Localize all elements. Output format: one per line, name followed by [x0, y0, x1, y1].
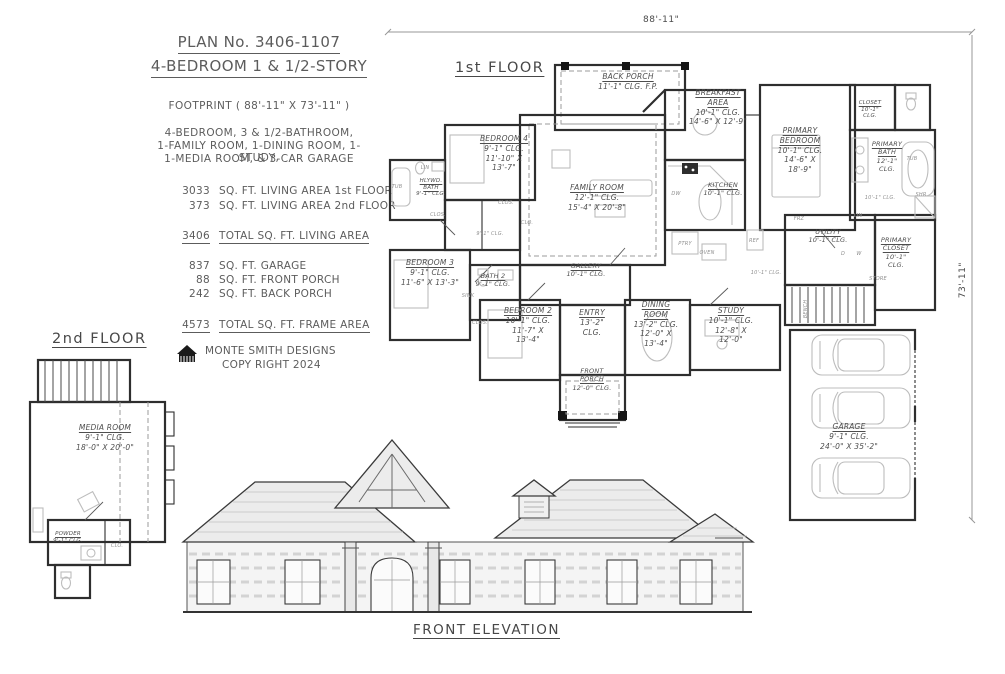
fixture-label-oven: OVEN — [699, 250, 714, 256]
room-details: 9'-1" CLG. 18'-0" X 20'-0" — [76, 433, 134, 453]
area-row-total-frame: 4573 TOTAL SQ. FT. FRAME AREA — [152, 319, 370, 333]
room-closet-upper: CLOSET 10'-1" CLG. — [859, 100, 882, 120]
room-name: PRIMARY CLOSET — [881, 236, 911, 253]
powder-fixtures — [61, 546, 101, 589]
fixture-label-shower: SHR — [915, 192, 926, 198]
room-back-porch: BACK PORCH 11'-1" CLG. F.P. — [598, 72, 658, 92]
plan-type-title: 4-BEDROOM 1 & 1/2-STORY — [140, 57, 378, 75]
room-name: DINING ROOM — [634, 300, 679, 320]
room-details: 9'-1" CLG. 24'-0" X 35'-2" — [820, 432, 878, 452]
fixture-label-closet: CLOS. — [498, 200, 514, 206]
room-details: 10'-1" CLG. 14'-6" X 12'-9" — [689, 108, 747, 128]
room-details: 10'-1" CLG. 14'-6" X 18'-9" — [778, 146, 823, 175]
plan-type-text: 4-BEDROOM 1 & 1/2-STORY — [151, 57, 367, 78]
area-value: 242 — [152, 288, 219, 300]
entry-door — [371, 558, 413, 612]
area-label: SQ. FT. LIVING AREA 2nd FLOOR — [219, 200, 396, 212]
room-details: 9'-1" CLG. 11'-6" X 13'-3" — [401, 268, 459, 288]
ceiling-note-10-1: 10'-1" CLG. — [751, 270, 782, 276]
garage-cars — [812, 335, 910, 498]
bathroom-fixtures — [392, 93, 935, 286]
total-frame-value: 4573 — [182, 319, 210, 333]
area-row-back-porch: 242 SQ. FT. BACK PORCH — [152, 288, 332, 300]
room-name: HLYWD. BATH — [416, 178, 446, 191]
area-label: SQ. FT. FRONT PORCH — [219, 274, 340, 286]
room-entry: ENTRY 13'-2" CLG. — [579, 308, 605, 337]
area-row-garage: 837 SQ. FT. GARAGE — [152, 260, 306, 272]
fixture-label-closet: CLOS. — [430, 212, 446, 218]
fixture-label-freezer: FRZ — [794, 216, 804, 222]
area-row-living-2nd: 373 SQ. FT. LIVING AREA 2nd FLOOR — [152, 200, 396, 212]
room-primary-bath: PRIMARY BATH 12'-1" CLG. — [872, 140, 902, 174]
car-icon — [812, 335, 910, 375]
room-name: FRONT PORCH — [572, 367, 611, 384]
room-details: 13'-2" CLG. 12'-0" X 13'-4" — [634, 320, 679, 349]
kitchen-range-icon — [682, 163, 698, 174]
room-details: 9'-1" CLG. — [416, 191, 446, 198]
floor-plan-sheet: PLAN No. 3406-1107 4-BEDROOM 1 & 1/2-STO… — [0, 0, 1005, 674]
room-name: PRIMARY BATH — [872, 140, 902, 157]
room-name: UTILITY — [808, 228, 847, 236]
fixture-label-sink: SINK — [462, 293, 474, 299]
media-room-furniture — [33, 492, 99, 532]
total-living-value: 3406 — [182, 230, 210, 244]
room-name: BREAKFAST AREA — [689, 88, 747, 108]
ceiling-note-9-1: 9'-1" CLG. — [476, 231, 503, 237]
room-media-room: MEDIA ROOM 9'-1" CLG. 18'-0" X 20'-0" — [76, 423, 134, 452]
room-name: MEDIA ROOM — [76, 423, 134, 433]
room-name: FAMILY ROOM — [568, 183, 626, 193]
room-details: 12'-0" CLG. — [572, 384, 611, 392]
room-name: BACK PORCH — [598, 72, 658, 82]
total-living-label: TOTAL SQ. FT. LIVING AREA — [219, 230, 369, 244]
room-details: 10'-1" CLG. — [808, 236, 847, 244]
room-details: 12'-1" CLG. 15'-4" X 20'-8" — [568, 193, 626, 213]
fixture-label-refrigerator: REF — [749, 238, 759, 244]
area-label: SQ. FT. GARAGE — [219, 260, 306, 272]
area-label: SQ. FT. BACK PORCH — [219, 288, 332, 300]
room-powder: POWDER 9'-1" CLG. — [53, 531, 83, 544]
plan-number-title: PLAN No. 3406-1107 — [150, 33, 368, 51]
room-name: BEDROOM 2 — [504, 306, 552, 316]
fixture-label-dryer: D — [841, 251, 845, 257]
room-details: 10'-1" CLG. 11'-7" X 13'-4" — [504, 316, 552, 345]
fixture-label-closet: CLOS. — [472, 320, 488, 326]
dormer — [513, 480, 555, 518]
room-kitchen: KITCHEN 10'-1" CLG. — [703, 181, 742, 198]
room-name: GARAGE — [820, 422, 878, 432]
room-name: KITCHEN — [703, 181, 742, 189]
room-hollywood-bath: HLYWD. BATH 9'-1" CLG. — [416, 178, 446, 198]
room-study: STUDY 10'-1" CLG. 12'-8" X 12'-0" — [709, 306, 754, 345]
area-value: 3033 — [152, 185, 219, 197]
fixture-label-tub: TUB — [907, 156, 918, 162]
description-line-1: 4-BEDROOM, 3 & 1/2-BATHROOM, — [140, 127, 378, 139]
room-name: POWDER — [53, 531, 83, 538]
area-row-front-porch: 88 SQ. FT. FRONT PORCH — [152, 274, 340, 286]
room-garage: GARAGE 9'-1" CLG. 24'-0" X 35'-2" — [820, 422, 878, 451]
room-gallery: GALLERY 10'-1" CLG. — [566, 262, 605, 279]
fixture-label-closet: CLO. — [521, 220, 533, 226]
room-details: 10'-1" CLG. — [881, 253, 911, 270]
area-value: 373 — [152, 200, 219, 212]
room-bedroom-2: BEDROOM 2 10'-1" CLG. 11'-7" X 13'-4" — [504, 306, 552, 345]
room-name: BEDROOM 3 — [401, 258, 459, 268]
room-name: BATH 2 — [476, 272, 511, 280]
room-name: CLOSET — [859, 100, 882, 107]
room-details: 10'-1" CLG. — [703, 189, 742, 197]
fixture-label-closet: CLO. — [111, 543, 123, 549]
room-name: STUDY — [709, 306, 754, 316]
room-name: ENTRY — [579, 308, 605, 318]
description-line-3: 1-MEDIA ROOM, & 3-CAR GARAGE — [140, 153, 378, 165]
front-elevation-drawing — [175, 430, 760, 625]
designer-name: MONTE SMITH DESIGNS — [205, 345, 336, 357]
room-details: 10'-1" CLG. 12'-8" X 12'-0" — [709, 316, 754, 345]
footprint-note: FOOTPRINT ( 88'-11" X 73'-11" ) — [150, 100, 368, 112]
area-value: 837 — [152, 260, 219, 272]
room-details: 11'-1" CLG. F.P. — [598, 82, 658, 92]
room-details: 10'-1" CLG. — [566, 270, 605, 278]
room-dining-room: DINING ROOM 13'-2" CLG. 12'-0" X 13'-4" — [634, 300, 679, 349]
room-name: BEDROOM 4 — [480, 134, 528, 144]
fixture-label-pantry: PTRY — [678, 241, 691, 247]
ceiling-note-10-1: 10'-1" CLG. — [865, 195, 896, 201]
fixture-label-dishwasher: DW — [671, 191, 680, 197]
second-floor-plan-drawing — [25, 350, 185, 605]
room-bath-2: BATH 2 9'-1" CLG. — [476, 272, 511, 289]
total-frame-label: TOTAL SQ. FT. FRAME AREA — [219, 319, 370, 333]
room-utility: UTILITY 10'-1" CLG. — [808, 228, 847, 245]
room-bedroom-3: BEDROOM 3 9'-1" CLG. 11'-6" X 13'-3" — [401, 258, 459, 287]
room-front-porch: FRONT PORCH 12'-0" CLG. — [572, 367, 611, 392]
fixture-label-bench: BENCH — [803, 300, 809, 319]
furniture — [394, 111, 820, 361]
walls — [30, 360, 174, 598]
car-icon — [812, 458, 910, 498]
room-primary-closet: PRIMARY CLOSET 10'-1" CLG. — [881, 236, 911, 270]
fixture-label-storage: STORE — [869, 276, 887, 282]
copyright-note: COPY RIGHT 2024 — [222, 359, 321, 371]
room-name: GALLERY — [566, 262, 605, 270]
second-floor-label: 2nd FLOOR — [52, 331, 147, 347]
room-details: 12'-1" CLG. — [872, 157, 902, 174]
roofs — [183, 480, 753, 542]
room-details: 10'-1" CLG. — [859, 107, 882, 120]
room-name: PRIMARY BEDROOM — [778, 126, 823, 146]
area-label: SQ. FT. LIVING AREA 1st FLOOR — [219, 185, 392, 197]
room-details: 9'-1" CLG. 11'-10" X 13'-7" — [480, 144, 528, 173]
room-bedroom-4: BEDROOM 4 9'-1" CLG. 11'-10" X 13'-7" — [480, 134, 528, 173]
room-family-room: FAMILY ROOM 12'-1" CLG. 15'-4" X 20'-8" — [568, 183, 626, 212]
fixture-label-washer: W — [856, 251, 861, 257]
fixture-label-linen: LIN — [421, 165, 430, 171]
area-row-living-1st: 3033 SQ. FT. LIVING AREA 1st FLOOR — [152, 185, 392, 197]
plan-number-text: PLAN No. 3406-1107 — [178, 33, 341, 54]
area-value: 88 — [152, 274, 219, 286]
fixture-label-linen: LIN — [854, 213, 863, 219]
room-details: 9'-1" CLG. — [476, 280, 511, 288]
room-breakfast-area: BREAKFAST AREA 10'-1" CLG. 14'-6" X 12'-… — [689, 88, 747, 127]
fixture-label-tub: TUB — [392, 184, 403, 190]
area-row-total-living: 3406 TOTAL SQ. FT. LIVING AREA — [152, 230, 369, 244]
room-details: 13'-2" CLG. — [579, 318, 605, 338]
door-swings — [85, 502, 103, 520]
stairs-icon — [45, 360, 117, 402]
room-details: 9'-1" CLG. — [53, 538, 83, 545]
room-primary-bedroom: PRIMARY BEDROOM 10'-1" CLG. 14'-6" X 18'… — [778, 126, 823, 175]
